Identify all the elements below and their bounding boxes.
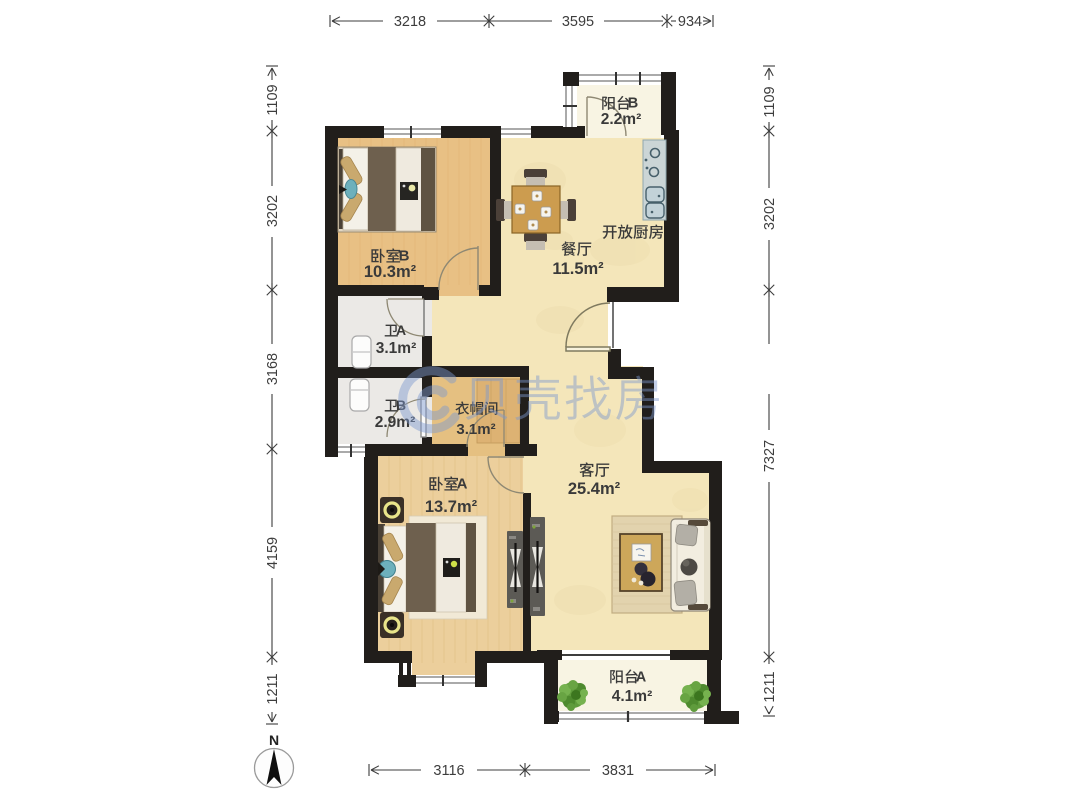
svg-text:A: A (396, 322, 406, 338)
svg-text:10.3m²: 10.3m² (364, 263, 417, 281)
svg-text:1211: 1211 (265, 673, 281, 704)
svg-text:N: N (269, 732, 279, 748)
svg-text:B: B (399, 248, 410, 265)
svg-text:3.1m²: 3.1m² (456, 421, 495, 438)
svg-text:11.5m²: 11.5m² (552, 260, 604, 278)
svg-text:1211: 1211 (762, 671, 778, 702)
svg-text:1109: 1109 (762, 86, 778, 117)
svg-text:25.4m²: 25.4m² (568, 480, 621, 498)
svg-text:3831: 3831 (602, 763, 634, 779)
svg-text:3116: 3116 (433, 763, 464, 779)
svg-text:7327: 7327 (762, 440, 778, 472)
svg-text:A: A (636, 670, 647, 686)
svg-text:A: A (457, 476, 468, 493)
svg-text:4159: 4159 (265, 537, 281, 569)
svg-text:3.1m²: 3.1m² (376, 340, 417, 357)
svg-text:4.1m²: 4.1m² (612, 688, 653, 705)
svg-text:3595: 3595 (562, 14, 594, 30)
svg-text:3168: 3168 (265, 353, 281, 385)
svg-text:B: B (628, 96, 638, 112)
svg-text:934: 934 (678, 14, 702, 30)
svg-text:13.7m²: 13.7m² (425, 498, 478, 516)
svg-text:1109: 1109 (265, 84, 281, 115)
svg-text:3202: 3202 (265, 195, 281, 227)
svg-text:3218: 3218 (394, 14, 426, 30)
svg-text:3202: 3202 (762, 198, 778, 230)
svg-text:2.2m²: 2.2m² (601, 111, 642, 128)
